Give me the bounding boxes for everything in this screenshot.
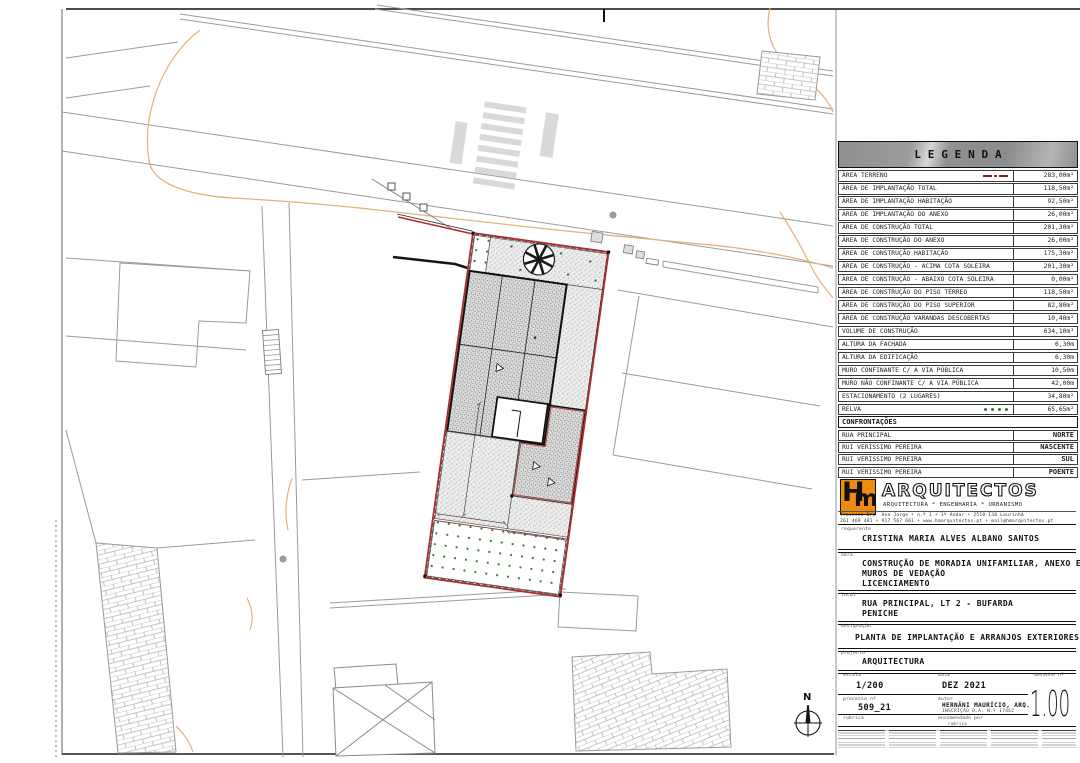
zebra-crossing-icon xyxy=(447,97,559,194)
obra-line3: LICENCIAMENTO xyxy=(862,579,930,588)
logo-letter-m: m xyxy=(854,486,876,512)
legend-row-value: 175,30m² xyxy=(1013,249,1077,259)
legend-table: ÁREA TERRENO283,00m²ÁREA DE IMPLANTAÇÃO … xyxy=(838,170,1078,430)
designacao-label: designação xyxy=(841,624,871,629)
confrontacoes-row: RUA PRINCIPALNORTE xyxy=(838,430,1078,441)
plot-group xyxy=(423,231,610,597)
divider xyxy=(838,524,1076,525)
confrontacao-name: RUI VERISSIMO PEREIRA xyxy=(839,443,1013,452)
local-line2: PENICHE xyxy=(862,609,899,618)
grass-symbol-icon xyxy=(980,408,1008,411)
firm-tagline: ARQUITECTURA * ENGENHARIA * URBANISMO xyxy=(883,502,1022,508)
legend-row-value: 10,50m xyxy=(1013,366,1077,376)
legend-row: ÁREA DE CONSTRUÇÃO - ABAIXO COTA SOLEIRA… xyxy=(838,274,1078,286)
legend-row-label: ÁREA TERRENO xyxy=(839,171,1013,181)
title-block-panel: LEGENDA ÁREA TERRENO283,00m²ÁREA DE IMPL… xyxy=(838,0,1078,763)
legend-row: ÁREA DE IMPLANTAÇÃO HABITAÇÃO92,50m² xyxy=(838,196,1078,208)
firm-address-line1: Travessa Dra. Ana Jorge + n.º 1 + 1º And… xyxy=(840,513,1076,518)
fence-posts xyxy=(372,179,452,229)
legend-row-value: 26,00m² xyxy=(1013,210,1077,220)
legend-row-label: MURO NÃO CONFINANTE C/ A VIA PÚBLICA xyxy=(839,379,1013,389)
firm-logo: H m xyxy=(840,479,876,515)
data-value: DEZ 2021 xyxy=(942,681,986,691)
legend-row: ÁREA DE CONSTRUÇÃO TOTAL201,30m² xyxy=(838,222,1078,234)
stairs-icon xyxy=(262,329,281,374)
legend-row: MURO CONFINANTE C/ A VIA PÚBLICA10,50m xyxy=(838,365,1078,377)
legend-row-label: ÁREA DE CONSTRUÇÃO DO PISO SUPERIOR xyxy=(839,301,1013,311)
legend-row-label: ÁREA DE CONSTRUÇÃO DO PISO TÉRREO xyxy=(839,288,1013,298)
margin-file-path-text xyxy=(55,520,57,758)
legend-row: ALTURA DA FACHADA6,30m xyxy=(838,339,1078,351)
legend-row: ÁREA DE CONSTRUÇÃO HABITAÇÃO175,30m² xyxy=(838,248,1078,260)
divider xyxy=(838,549,1076,553)
legend-row-label: RELVA xyxy=(839,405,1013,415)
obra-line2: MUROS DE VEDAÇÃO xyxy=(862,569,945,578)
legend-row: ÁREA DE CONSTRUÇÃO - ACIMA COTA SOLEIRA2… xyxy=(838,261,1078,273)
legend-row: VOLUME DE CONSTRUÇÃO634,10m³ xyxy=(838,326,1078,338)
data-label: data xyxy=(938,673,950,678)
designacao-value: PLANTA DE IMPLANTAÇÃO E ARRANJOS EXTERIO… xyxy=(855,633,1079,642)
legend-row-value: 34,80m² xyxy=(1013,392,1077,402)
patio xyxy=(492,397,548,444)
legend-row-value: 118,50m² xyxy=(1013,288,1077,298)
brick-area-southeast xyxy=(572,652,731,751)
legend-row-value: 10,40m² xyxy=(1013,314,1077,324)
legend-row-label: ESTACIONAMENTO (2 LUGARES) xyxy=(839,392,1013,402)
legend-row-value: 634,10m³ xyxy=(1013,327,1077,337)
processo-value: 509_21 xyxy=(858,703,891,713)
legend-row-value: 283,00m² xyxy=(1013,171,1077,181)
north-arrow-icon xyxy=(794,705,822,737)
manhole-icon xyxy=(610,212,617,219)
legend-row: ÁREA DE CONSTRUÇÃO DO ANEXO26,00m² xyxy=(838,235,1078,247)
confrontacoes-row: RUI VERISSIMO PEREIRASUL xyxy=(838,454,1078,465)
legend-row: ÁREA TERRENO283,00m² xyxy=(838,170,1078,182)
legend-row-label: ÁREA DE CONSTRUÇÃO - ABAIXO COTA SOLEIRA xyxy=(839,275,1013,285)
confrontacoes-row: RUI VERISSIMO PEREIRANASCENTE xyxy=(838,442,1078,453)
legend-row-label: MURO CONFINANTE C/ A VIA PÚBLICA xyxy=(839,366,1013,376)
desenho-label: desenho nº xyxy=(1034,673,1064,678)
legend-row-label: ÁREA DE IMPLANTAÇÃO TOTAL xyxy=(839,184,1013,194)
legend-row-value: 26,00m² xyxy=(1013,236,1077,246)
divider xyxy=(838,648,1076,652)
legend-row: MURO NÃO CONFINANTE C/ A VIA PÚBLICA42,0… xyxy=(838,378,1078,390)
legend-row-label: ALTURA DA EDIFICAÇÃO xyxy=(839,353,1013,363)
obra-label: obra xyxy=(841,553,853,558)
confrontacao-side: NORTE xyxy=(1013,431,1077,440)
legend-row: ÁREA DE IMPLANTAÇÃO DO ANEXO26,00m² xyxy=(838,209,1078,221)
fine-print-paragraph xyxy=(838,742,1076,750)
legend-row-label: ÁREA DE CONSTRUÇÃO HABITAÇÃO xyxy=(839,249,1013,259)
confrontacao-name: RUI VERISSIMO PEREIRA xyxy=(839,455,1013,464)
obra-line1: CONSTRUÇÃO DE MORADIA UNIFAMILIAR, ANEXO… xyxy=(862,559,1080,568)
legend-row-value: 201,30m² xyxy=(1013,262,1077,272)
legend-row: ESTACIONAMENTO (2 LUGARES)34,80m² xyxy=(838,391,1078,403)
requerente-value: CRISTINA MARIA ALVES ALBANO SANTOS xyxy=(862,534,1039,543)
confrontacao-side: SUL xyxy=(1013,455,1077,464)
divider xyxy=(838,714,1028,715)
legend-row-value: 0,00m² xyxy=(1013,275,1077,285)
rubrica-label: rubrica xyxy=(843,716,864,721)
local-line1: RUA PRINCIPAL, LT 2 - BUFARDA xyxy=(862,599,1013,608)
legend-row-value: 65,65m² xyxy=(1013,405,1077,415)
legend-row-value: 6,30m xyxy=(1013,353,1077,363)
drawing-number: 1.00 xyxy=(1030,684,1070,725)
terrain-symbol-icon xyxy=(981,175,1008,177)
requerente-label: requerente xyxy=(841,527,871,532)
fine-print-paragraph xyxy=(838,730,1076,739)
confrontacao-side: NASCENTE xyxy=(1013,443,1077,452)
construction-x-building xyxy=(333,664,435,756)
legend-row: ÁREA DE CONSTRUÇÃO VARANDAS DESCOBERTAS1… xyxy=(838,313,1078,325)
legend-row-label: ÁREA DE CONSTRUÇÃO DO ANEXO xyxy=(839,236,1013,246)
legend-title: LEGENDA xyxy=(908,148,1009,161)
road-network xyxy=(62,5,833,757)
legend-row-label: ÁREA DE CONSTRUÇÃO VARANDAS DESCOBERTAS xyxy=(839,314,1013,324)
divider xyxy=(838,511,1076,512)
legend-row-value: 6,30m xyxy=(1013,340,1077,350)
legend-row-label: ÁREA DE IMPLANTAÇÃO DO ANEXO xyxy=(839,210,1013,220)
firm-address-line2: 261 469 481 + 917 567 661 + www.hmarquit… xyxy=(840,519,1076,524)
legend-row-label: ÁREA DE CONSTRUÇÃO TOTAL xyxy=(839,223,1013,233)
confrontacoes-title: CONFRONTAÇÕES xyxy=(838,416,1078,428)
legend-row-value: 118,50m² xyxy=(1013,184,1077,194)
projecto-label: projecto xyxy=(841,651,865,656)
confrontacoes-table: CONFRONTAÇÕES RUA PRINCIPALNORTERUI VERI… xyxy=(838,416,1078,479)
autor-line1: HERNÂNI MAURÍCIO, ARQ. xyxy=(942,702,1030,709)
pave-lower-left xyxy=(435,431,520,528)
confrontacao-name: RUI VERISSIMO PEREIRA xyxy=(839,468,1013,477)
legend-row-value: 82,80m² xyxy=(1013,301,1077,311)
divider xyxy=(838,694,1028,695)
legend-row: RELVA65,65m² xyxy=(838,404,1078,416)
legend-row-label: ALTURA DA FACHADA xyxy=(839,340,1013,350)
legend-row-label: ÁREA DE CONSTRUÇÃO - ACIMA COTA SOLEIRA xyxy=(839,262,1013,272)
legend-row-value: 42,00m xyxy=(1013,379,1077,389)
legend-row: ÁREA DE CONSTRUÇÃO DO PISO TÉRREO118,50m… xyxy=(838,287,1078,299)
legend-row-label: ÁREA DE IMPLANTAÇÃO HABITAÇÃO xyxy=(839,197,1013,207)
confrontacao-name: RUA PRINCIPAL xyxy=(839,431,1013,440)
drawing-sheet: N LEGENDA ÁREA TERRENO283,00m²ÁREA DE IM… xyxy=(0,0,1080,763)
escala-label: escala xyxy=(843,673,861,678)
processo-label: processo nº xyxy=(843,697,876,702)
local-label: local xyxy=(841,593,856,598)
divider xyxy=(838,590,1076,594)
legend-row: ALTURA DA EDIFICAÇÃO6,30m xyxy=(838,352,1078,364)
legend-row-value: 92,50m² xyxy=(1013,197,1077,207)
divider xyxy=(838,621,1076,625)
legend-header: LEGENDA xyxy=(838,141,1078,168)
manhole-icon xyxy=(280,556,287,563)
legend-row: ÁREA DE IMPLANTAÇÃO TOTAL118,50m² xyxy=(838,183,1078,195)
legend-row: ÁREA DE CONSTRUÇÃO DO PISO SUPERIOR82,80… xyxy=(838,300,1078,312)
confrontacoes-row: RUI VERISSIMO PEREIRAPOENTE xyxy=(838,467,1078,478)
legend-row-value: 201,30m² xyxy=(1013,223,1077,233)
legend-row-label: VOLUME DE CONSTRUÇÃO xyxy=(839,327,1013,337)
escala-value: 1/200 xyxy=(856,681,884,691)
confrontacao-side: POENTE xyxy=(1013,468,1077,477)
north-label: N xyxy=(803,692,811,703)
firm-name: ARQUITECTOS xyxy=(882,481,1039,501)
brick-area-northeast xyxy=(757,51,820,100)
projecto-value: ARQUITECTURA xyxy=(862,657,925,666)
brick-area-southwest xyxy=(96,543,176,753)
